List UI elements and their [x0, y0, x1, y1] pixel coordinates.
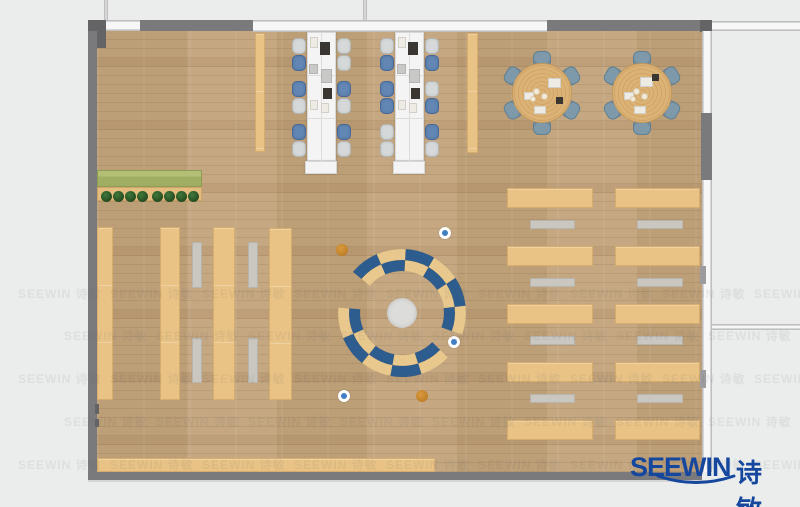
- paper: [534, 106, 546, 114]
- bench-strip: [530, 278, 575, 287]
- bench-strip: [192, 338, 202, 383]
- desk-panel: [409, 69, 420, 83]
- desk-chair-gray: [292, 98, 306, 114]
- bench-strip: [530, 220, 575, 229]
- reading-row: [615, 420, 700, 440]
- bookshelf-column-3: [213, 227, 235, 400]
- tree: [125, 191, 136, 202]
- paper: [321, 103, 329, 113]
- tablet: [652, 74, 659, 81]
- desk-chair-gray: [337, 141, 351, 157]
- wall-right-block: [701, 113, 712, 180]
- desk-chair-blue: [425, 124, 439, 140]
- bench-strip: [248, 338, 258, 383]
- window-wall-right: [702, 31, 712, 472]
- plate: [633, 88, 640, 95]
- desk-divider: [307, 118, 336, 119]
- exterior-wall-line: [363, 0, 367, 21]
- bench-strip: [637, 394, 683, 403]
- hedge-planter: [97, 170, 202, 187]
- tree: [137, 191, 148, 202]
- paper: [398, 100, 406, 110]
- plate: [533, 88, 540, 95]
- floor-plan: SEEWIN 诗敏SEEWIN 诗敏SEEWIN 诗敏SEEWIN 诗敏SEEW…: [0, 0, 800, 507]
- bench-strip: [637, 220, 683, 229]
- desk-chair-blue: [292, 124, 306, 140]
- window-top: [106, 20, 140, 31]
- reading-row: [507, 420, 593, 440]
- tree: [113, 191, 124, 202]
- tree: [164, 191, 175, 202]
- circular-shelf-arcs: [332, 243, 472, 383]
- brand-wordmark-cn: 诗敏: [736, 453, 762, 507]
- bench-strip: [530, 336, 575, 345]
- desk-panel: [397, 64, 406, 74]
- window-mullion: [700, 266, 706, 284]
- desk-chair-gray: [380, 38, 394, 54]
- side-strip-left: [255, 33, 265, 152]
- wall-detail: [95, 419, 99, 427]
- plate: [541, 93, 548, 100]
- watermark-text: SEEWIN 诗敏: [708, 413, 792, 430]
- reading-row: [615, 188, 700, 208]
- reading-row: [507, 188, 593, 208]
- tablet: [556, 97, 563, 104]
- desk-chair-blue: [380, 55, 394, 71]
- wall-top-right: [547, 20, 702, 31]
- exterior-wall-line: [104, 0, 108, 21]
- bench-strip: [637, 278, 683, 287]
- stool-blue: [338, 390, 350, 402]
- stool-blue: [439, 227, 451, 239]
- tree: [152, 191, 163, 202]
- reading-row: [507, 246, 593, 266]
- desk-panel: [309, 64, 318, 74]
- paper: [310, 37, 318, 48]
- laptop: [411, 88, 420, 99]
- desk-chair-blue: [425, 55, 439, 71]
- desk-chair-blue: [380, 81, 394, 97]
- desk-chair-blue: [337, 124, 351, 140]
- desk-chair-gray: [337, 98, 351, 114]
- desk-chair-gray: [380, 141, 394, 157]
- bench-strip: [530, 394, 575, 403]
- side-strip-right: [467, 33, 478, 153]
- bookshelf-column-2: [160, 227, 180, 400]
- desk-chair-gray: [380, 124, 394, 140]
- paper: [398, 37, 406, 48]
- bench-strip: [248, 242, 258, 288]
- bench-strip: [637, 336, 683, 345]
- desk-chair-gray: [425, 38, 439, 54]
- bookshelf-column-1: [97, 227, 113, 400]
- desk-divider: [395, 118, 424, 119]
- reading-row: [507, 304, 593, 324]
- desk-chair-gray: [425, 141, 439, 157]
- desk-chair-gray: [337, 38, 351, 54]
- plate: [630, 96, 636, 102]
- desk-chair-gray: [292, 141, 306, 157]
- desk-chair-blue: [337, 81, 351, 97]
- desk-chair-blue: [425, 98, 439, 114]
- watermark-text: SEEWIN 诗敏: [754, 285, 800, 302]
- bookshelf-column-4: [269, 228, 292, 400]
- desk-chair-blue: [292, 55, 306, 71]
- paper: [409, 103, 417, 113]
- reading-row: [615, 246, 700, 266]
- window-mullion: [700, 370, 706, 388]
- stool-orange: [416, 390, 428, 402]
- desk-chair-gray: [425, 81, 439, 97]
- bottom-counter: [97, 458, 435, 472]
- exterior-wall-line-right: [712, 324, 800, 330]
- window-top-main: [253, 20, 547, 32]
- laptop: [408, 42, 418, 55]
- paper: [310, 100, 318, 110]
- desk-chair-gray: [337, 55, 351, 71]
- desk-chair-gray: [292, 38, 306, 54]
- paper: [634, 106, 646, 114]
- desk-chair-blue: [380, 98, 394, 114]
- tree: [176, 191, 187, 202]
- plate: [641, 93, 648, 100]
- wall-top-left: [140, 20, 253, 31]
- tree: [101, 191, 112, 202]
- watermark-text: SEEWIN 诗敏: [754, 370, 800, 387]
- laptop: [320, 42, 330, 55]
- wall-shadow: [88, 480, 712, 482]
- reading-row: [507, 362, 593, 382]
- reading-row: [615, 362, 700, 382]
- wall-bottom: [88, 472, 702, 480]
- tree: [188, 191, 199, 202]
- exterior-window-band: [712, 21, 800, 31]
- plate: [530, 96, 536, 102]
- desk-panel: [321, 69, 332, 83]
- desk-return-b: [393, 161, 425, 174]
- paper: [548, 78, 561, 88]
- brand-swoosh-icon: [656, 473, 736, 489]
- wall-detail: [95, 404, 99, 414]
- bench-strip: [192, 242, 202, 288]
- arc-segment: [392, 353, 418, 366]
- desk-chair-blue: [292, 81, 306, 97]
- reading-row: [615, 304, 700, 324]
- desk-return-a: [305, 161, 337, 174]
- laptop: [323, 88, 332, 99]
